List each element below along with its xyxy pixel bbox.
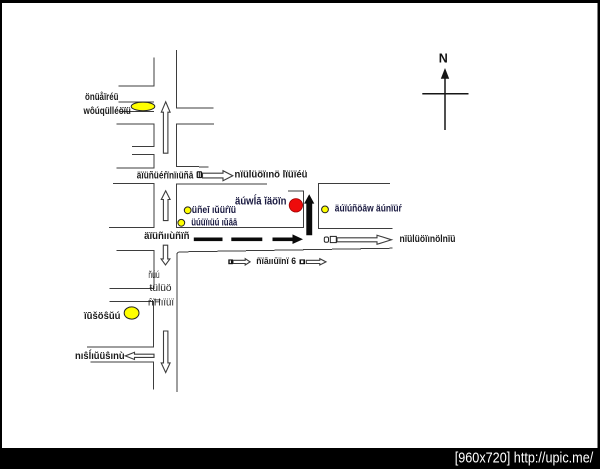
svg-text:äúïúñöāw äúnïüŕ: äúïúñöāw äúnïüŕ	[335, 204, 402, 215]
svg-text:ñïāııūïnï 6: ñïāııūïnï 6	[256, 256, 296, 267]
svg-text:üñeī ıŭüŕïü: üñeī ıŭüŕïü	[192, 205, 236, 216]
svg-text:nïülüöïınö lïüïéü: nïülüöïınö lïüïéü	[235, 170, 308, 181]
svg-text:ñúú: ñúú	[148, 270, 159, 281]
svg-text:[960x720] http://upic.me/: [960x720] http://upic.me/	[455, 450, 594, 467]
svg-text:nıŝĺıŭüŝınù: nıŝĺıŭüŝınù	[75, 348, 125, 362]
svg-text:nïülüöïınölnïü: nïülüöïınölnïü	[400, 234, 456, 245]
svg-text:ïūšöŝŭú: ïūšöŝŭú	[83, 311, 120, 322]
svg-text:önüåïréü: önüåïréü	[85, 91, 119, 103]
svg-text:ŕïĦıïüï: ŕïĦıïüï	[148, 298, 174, 309]
svg-text:äïüñüéŕïnïıüñā: äïüñüéŕïnïıüñā	[137, 170, 194, 181]
svg-text:ŧülüö: ŧülüö	[150, 283, 172, 294]
svg-text:äïüñııùñïñ: äïüñııùñïñ	[144, 231, 189, 242]
svg-text:äúwĺā ĭäöïn: äúwĺā ĭäöïn	[235, 194, 287, 208]
svg-text:wôúqülléöïü: wôúqülléöïü	[83, 106, 131, 117]
svg-text:üúüïıüú ıŭāā: üúüïıüú ıŭāā	[191, 217, 237, 228]
svg-text:N: N	[439, 51, 448, 65]
